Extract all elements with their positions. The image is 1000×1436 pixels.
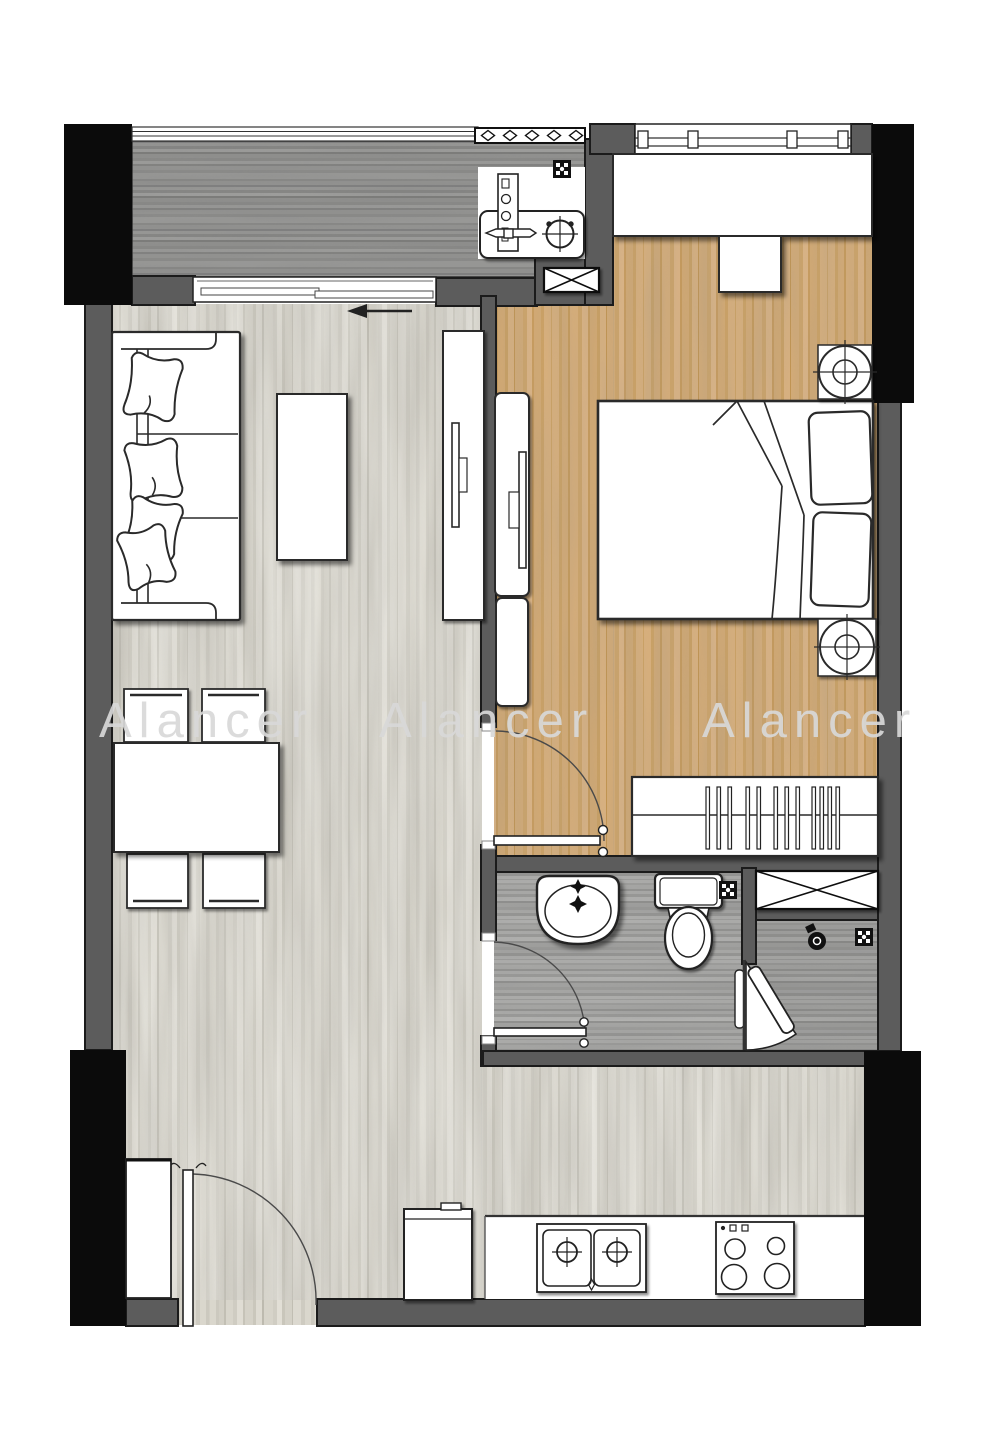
svg-text:Alancer: Alancer <box>379 694 594 748</box>
svg-text:Alancer: Alancer <box>99 694 314 748</box>
svg-text:Alancer: Alancer <box>702 694 917 748</box>
